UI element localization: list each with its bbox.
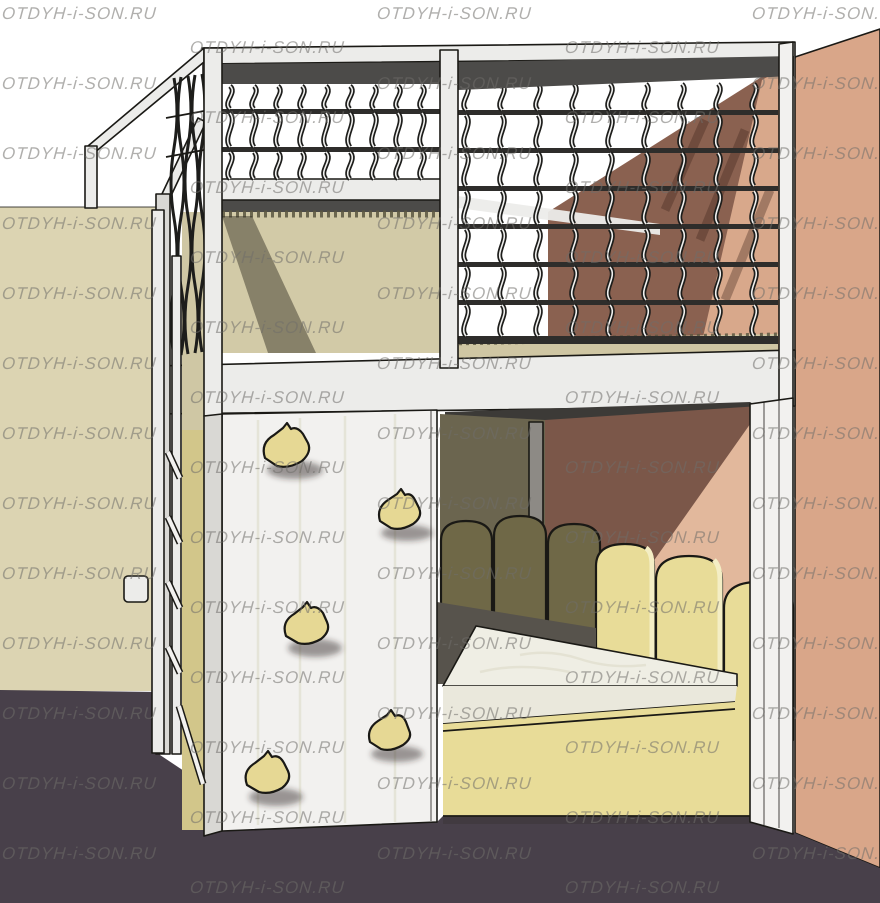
scene-svg <box>0 0 880 903</box>
front-left-post-lower <box>204 414 222 836</box>
mid-rail-board <box>216 179 443 200</box>
half-wall-panel <box>216 179 443 353</box>
bed-floor-shadow <box>443 816 752 824</box>
left-wall <box>0 207 162 691</box>
wall-bracket <box>124 576 148 602</box>
product-render: OTDYH-i-SON.RUOTDYH-i-SON.RUOTDYH-i-SON.… <box>0 0 880 903</box>
right-wall <box>795 29 880 868</box>
ladder-rail <box>152 210 164 753</box>
mid-post <box>440 50 458 368</box>
front-left-post <box>204 48 222 416</box>
ladder-rail <box>172 256 181 754</box>
wall-post <box>85 146 97 208</box>
